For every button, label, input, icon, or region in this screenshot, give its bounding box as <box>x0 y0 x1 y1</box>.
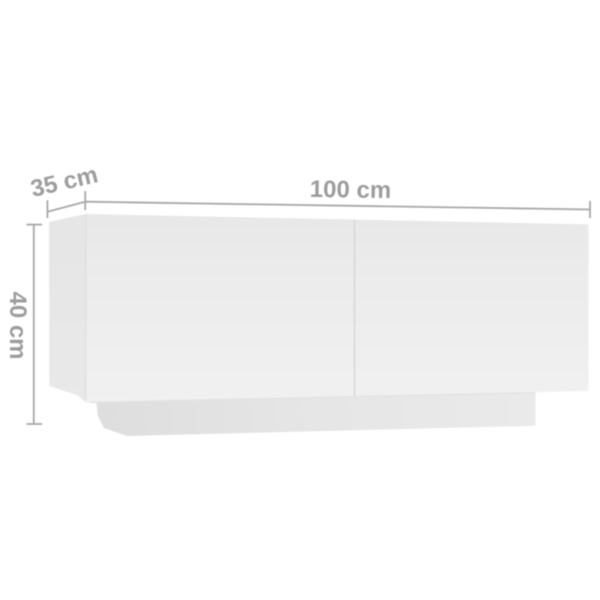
svg-text:100 cm: 100 cm <box>310 176 392 204</box>
svg-text:40 cm: 40 cm <box>4 291 31 359</box>
